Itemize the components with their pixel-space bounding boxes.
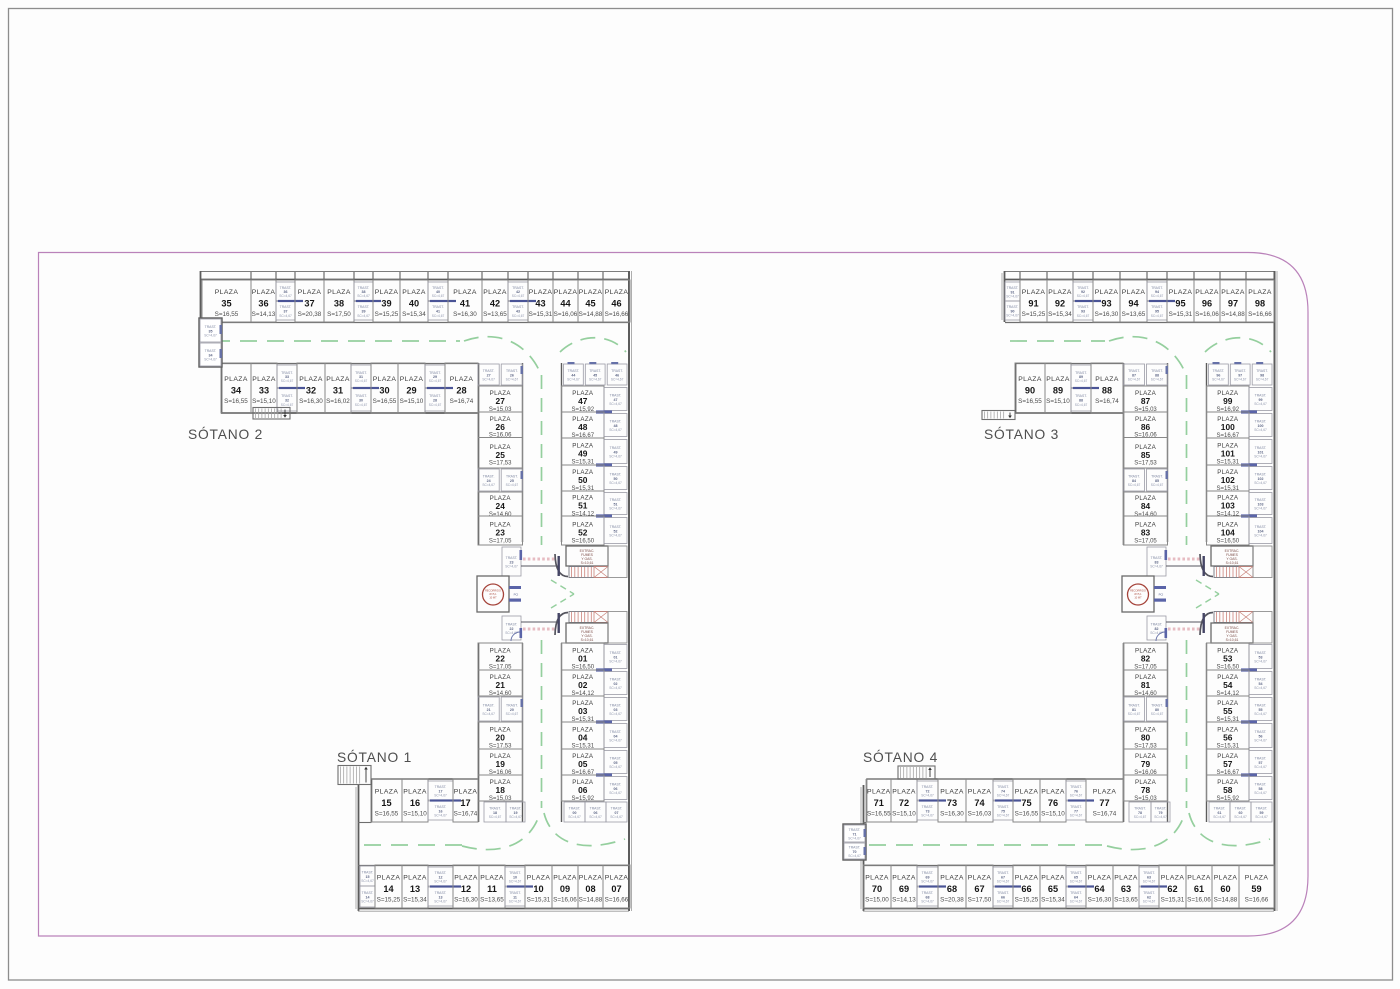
svg-text:SC=4,67: SC=4,67 [921, 900, 934, 904]
svg-text:S=15,31: S=15,31 [529, 311, 553, 318]
svg-text:10: 10 [533, 884, 543, 894]
svg-text:SC=4,67: SC=4,67 [434, 814, 447, 818]
svg-text:08: 08 [585, 884, 595, 894]
svg-text:S=15,25: S=15,25 [377, 897, 401, 904]
svg-text:95: 95 [1175, 299, 1185, 309]
svg-text:SC=4,67: SC=4,67 [921, 814, 934, 818]
svg-text:91: 91 [1028, 299, 1038, 309]
svg-text:S=17,05: S=17,05 [1134, 664, 1157, 670]
svg-text:PLAZA: PLAZA [1015, 789, 1039, 796]
svg-text:SC=4,67: SC=4,67 [1075, 403, 1088, 407]
svg-text:PLAZA: PLAZA [454, 875, 478, 882]
svg-text:100: 100 [1221, 422, 1235, 432]
svg-text:SC=4,67: SC=4,67 [1254, 739, 1267, 743]
svg-text:PCI: PCI [514, 593, 519, 597]
svg-text:S=10,61: S=10,61 [581, 638, 594, 642]
svg-text:S=13,65: S=13,65 [483, 311, 507, 318]
svg-text:PCI: PCI [1159, 593, 1164, 597]
svg-text:30: 30 [379, 386, 389, 396]
svg-text:09: 09 [560, 884, 570, 894]
svg-text:SC=4,67: SC=4,67 [609, 428, 622, 432]
svg-text:SC=4,67: SC=4,67 [509, 880, 522, 884]
svg-text:61: 61 [1194, 884, 1204, 894]
svg-text:S=16,55: S=16,55 [215, 311, 239, 318]
svg-text:SC=4,67: SC=4,67 [361, 900, 374, 904]
svg-text:S=16,74: S=16,74 [454, 811, 478, 818]
svg-text:S=14,13: S=14,13 [252, 311, 276, 318]
svg-text:21: 21 [496, 680, 506, 690]
svg-text:SC=4,67: SC=4,67 [1006, 314, 1019, 318]
svg-text:SC=4,67: SC=4,67 [1006, 295, 1019, 299]
svg-text:S=16,55: S=16,55 [1018, 398, 1042, 405]
svg-text:SC=4,67: SC=4,67 [848, 837, 861, 841]
svg-text:83: 83 [1141, 528, 1151, 538]
svg-text:SC=4,67: SC=4,67 [589, 815, 602, 819]
svg-text:S=15,10: S=15,10 [400, 398, 424, 405]
svg-text:SC=4,67: SC=4,67 [505, 565, 518, 569]
svg-text:58: 58 [1223, 785, 1233, 795]
svg-text:SC=4,67: SC=4,67 [1070, 880, 1083, 884]
svg-text:Ø=5,1: Ø=5,1 [1134, 592, 1142, 596]
svg-text:SÓTANO 2: SÓTANO 2 [188, 426, 263, 442]
svg-text:S=16,30: S=16,30 [1088, 897, 1112, 904]
svg-text:SC=4,67: SC=4,67 [1254, 402, 1267, 406]
svg-text:45: 45 [585, 299, 595, 309]
svg-text:S=16,66: S=16,66 [605, 311, 629, 318]
svg-text:PLAZA: PLAZA [299, 376, 323, 383]
svg-text:SC=4,67: SC=4,67 [1075, 379, 1088, 383]
svg-text:SC=4,67: SC=4,67 [1212, 378, 1225, 382]
svg-text:76: 76 [1048, 798, 1058, 808]
svg-text:90: 90 [1025, 386, 1035, 396]
svg-text:SC=4,67: SC=4,67 [997, 880, 1010, 884]
svg-text:104: 104 [1221, 528, 1235, 538]
svg-text:S=15,03: S=15,03 [1134, 796, 1157, 802]
svg-text:SC=4,67: SC=4,67 [1154, 815, 1167, 819]
svg-text:SC=4,67: SC=4,67 [434, 880, 447, 884]
svg-text:S=17,53: S=17,53 [489, 461, 512, 467]
svg-text:SC=4,67: SC=4,67 [1143, 900, 1156, 904]
svg-text:47: 47 [578, 396, 588, 406]
svg-text:06: 06 [578, 785, 588, 795]
svg-text:RECORRIDO: RECORRIDO [485, 589, 501, 593]
svg-text:24: 24 [496, 501, 506, 511]
svg-text:80: 80 [1141, 733, 1151, 743]
svg-text:SC=4,67: SC=4,67 [506, 483, 519, 487]
svg-text:PLAZA: PLAZA [1187, 875, 1211, 882]
svg-text:S=20,38: S=20,38 [298, 311, 322, 318]
svg-text:PLAZA: PLAZA [968, 875, 992, 882]
svg-text:S=15,25: S=15,25 [375, 311, 399, 318]
svg-text:SC=4,67: SC=4,67 [1254, 765, 1267, 769]
svg-text:S=14,60: S=14,60 [489, 512, 512, 518]
svg-text:74: 74 [974, 798, 985, 808]
svg-text:S=15,31: S=15,31 [1161, 897, 1185, 904]
svg-text:S=16,55: S=16,55 [867, 811, 891, 818]
svg-text:86: 86 [1141, 422, 1151, 432]
svg-text:SC=4,67: SC=4,67 [609, 712, 622, 716]
svg-text:S=16,50: S=16,50 [572, 538, 595, 544]
svg-text:S=14,60: S=14,60 [1134, 691, 1157, 697]
svg-text:SC=4,67: SC=4,67 [609, 402, 622, 406]
svg-text:11: 11 [487, 884, 497, 894]
svg-text:PLAZA: PLAZA [1195, 289, 1219, 296]
svg-text:18: 18 [496, 785, 506, 795]
svg-text:SC=4,67: SC=4,67 [281, 403, 294, 407]
svg-text:SC=4,67: SC=4,67 [357, 294, 370, 298]
svg-text:S=16,66: S=16,66 [1248, 311, 1272, 318]
svg-text:SC=4,67: SC=4,67 [1128, 712, 1141, 716]
svg-text:PLAZA: PLAZA [403, 789, 427, 796]
svg-text:60: 60 [1220, 884, 1230, 894]
svg-text:40: 40 [409, 299, 419, 309]
svg-text:SC=4,67: SC=4,67 [1151, 314, 1164, 318]
svg-text:PLAZA: PLAZA [1018, 376, 1042, 383]
svg-text:65: 65 [1048, 884, 1058, 894]
svg-text:S=16,30: S=16,30 [453, 311, 477, 318]
svg-text:PLAZA: PLAZA [215, 289, 239, 296]
svg-text:54: 54 [1223, 680, 1233, 690]
svg-text:SC=4,67: SC=4,67 [1254, 712, 1267, 716]
svg-text:SC=4,67: SC=4,67 [997, 794, 1010, 798]
svg-text:02: 02 [578, 680, 588, 690]
svg-text:SC=4,67: SC=4,67 [1151, 483, 1164, 487]
svg-text:PLAZA: PLAZA [483, 289, 507, 296]
svg-text:TRAST.: TRAST. [280, 305, 292, 309]
svg-text:SÓTANO 4: SÓTANO 4 [863, 749, 938, 765]
svg-text:PLAZA: PLAZA [1161, 875, 1185, 882]
svg-text:PLAZA: PLAZA [377, 875, 401, 882]
svg-text:SC=4,67: SC=4,67 [204, 358, 217, 362]
svg-text:71: 71 [874, 798, 884, 808]
svg-text:SC=4,67: SC=4,67 [921, 794, 934, 798]
svg-text:25: 25 [496, 450, 506, 460]
svg-text:66: 66 [1021, 884, 1031, 894]
svg-text:S=13,65: S=13,65 [1114, 897, 1138, 904]
svg-text:SC=4,67: SC=4,67 [609, 739, 622, 743]
svg-text:S=16,55: S=16,55 [373, 398, 397, 405]
svg-text:PLAZA: PLAZA [605, 875, 629, 882]
svg-text:S=16,06: S=16,06 [1187, 897, 1211, 904]
svg-text:S=13,65: S=13,65 [480, 897, 504, 904]
svg-text:05: 05 [578, 759, 588, 769]
svg-text:PLAZA: PLAZA [554, 289, 578, 296]
svg-text:S=15,10: S=15,10 [892, 811, 916, 818]
svg-text:Ø=5,1: Ø=5,1 [489, 592, 497, 596]
svg-text:TRAST.: TRAST. [1075, 394, 1087, 398]
svg-text:PLAZA: PLAZA [373, 376, 397, 383]
svg-text:SC=4,67: SC=4,67 [432, 314, 445, 318]
svg-text:S=17,05: S=17,05 [1134, 538, 1157, 544]
svg-text:94: 94 [1128, 299, 1139, 309]
svg-text:SC=4,67: SC=4,67 [429, 379, 442, 383]
svg-text:SC=4,67: SC=4,67 [1256, 378, 1269, 382]
svg-text:PLAZA: PLAZA [453, 289, 477, 296]
svg-text:S=14,88: S=14,88 [1214, 897, 1238, 904]
svg-text:SC=4,67: SC=4,67 [609, 686, 622, 690]
svg-text:SC=4,67: SC=4,67 [609, 481, 622, 485]
svg-text:55: 55 [1223, 706, 1233, 716]
svg-text:TRAST.: TRAST. [281, 394, 293, 398]
svg-text:57: 57 [1223, 759, 1233, 769]
svg-text:PLAZA: PLAZA [1095, 289, 1119, 296]
svg-text:TRAST.: TRAST. [1151, 305, 1163, 309]
svg-text:S=15,31: S=15,31 [527, 897, 551, 904]
svg-text:77: 77 [1099, 798, 1109, 808]
svg-text:S=16,74: S=16,74 [1095, 398, 1119, 405]
svg-text:SC=4,67: SC=4,67 [1254, 791, 1267, 795]
svg-text:SC=4,67: SC=4,67 [434, 794, 447, 798]
svg-text:67: 67 [974, 884, 984, 894]
svg-text:TRAST.: TRAST. [432, 305, 444, 309]
svg-text:48: 48 [578, 422, 588, 432]
svg-text:S=16,55: S=16,55 [224, 398, 248, 405]
svg-text:SC=4,67: SC=4,67 [1077, 314, 1090, 318]
svg-text:S=16,30: S=16,30 [454, 897, 478, 904]
svg-text:12: 12 [461, 884, 471, 894]
svg-text:SC=4,67: SC=4,67 [1128, 378, 1141, 382]
svg-text:SC=4,67: SC=4,67 [482, 378, 495, 382]
svg-text:15: 15 [381, 798, 391, 808]
svg-text:S=15,34: S=15,34 [1048, 311, 1072, 318]
svg-text:PLAZA: PLAZA [529, 289, 553, 296]
svg-text:19: 19 [496, 759, 506, 769]
svg-text:43: 43 [535, 299, 545, 309]
svg-text:56: 56 [1223, 733, 1233, 743]
svg-text:99: 99 [1223, 396, 1233, 406]
svg-text:68: 68 [947, 884, 957, 894]
svg-text:S=15,31: S=15,31 [572, 743, 595, 749]
svg-text:S=17,50: S=17,50 [327, 311, 351, 318]
svg-text:97: 97 [1228, 299, 1238, 309]
svg-text:07: 07 [611, 884, 621, 894]
svg-text:S=14,60: S=14,60 [1134, 512, 1157, 518]
svg-text:S=16,02: S=16,02 [326, 398, 350, 405]
svg-text:75: 75 [1021, 798, 1031, 808]
svg-text:SC=4,67: SC=4,67 [848, 854, 861, 858]
svg-text:17: 17 [460, 798, 470, 808]
svg-text:42: 42 [490, 299, 500, 309]
svg-text:88: 88 [1102, 386, 1112, 396]
svg-text:SC=4,67: SC=4,67 [1254, 534, 1267, 538]
svg-text:PLAZA: PLAZA [865, 875, 889, 882]
svg-text:S=10,61: S=10,61 [1226, 561, 1239, 565]
svg-text:PLAZA: PLAZA [867, 789, 891, 796]
svg-text:SC=4,67: SC=4,67 [567, 378, 580, 382]
svg-text:SC=4,67: SC=4,67 [1134, 815, 1147, 819]
svg-text:SC=4,67: SC=4,67 [482, 483, 495, 487]
svg-text:S=16,66: S=16,66 [605, 897, 629, 904]
svg-text:S=16,06: S=16,06 [553, 897, 577, 904]
svg-text:PLAZA: PLAZA [252, 289, 276, 296]
svg-text:PLAZA: PLAZA [605, 289, 629, 296]
svg-text:53: 53 [1223, 654, 1233, 664]
svg-text:13: 13 [410, 884, 420, 894]
svg-text:PLAZA: PLAZA [1095, 376, 1119, 383]
svg-text:S=16,06: S=16,06 [554, 311, 578, 318]
svg-text:PLAZA: PLAZA [968, 789, 992, 796]
svg-text:22: 22 [496, 654, 506, 664]
svg-text:SÓTANO 1: SÓTANO 1 [337, 749, 412, 765]
svg-text:PLAZA: PLAZA [454, 789, 478, 796]
svg-text:PLAZA: PLAZA [375, 289, 399, 296]
svg-text:73: 73 [947, 798, 957, 808]
svg-text:S=15,92: S=15,92 [1217, 796, 1240, 802]
svg-text:S=16,30: S=16,30 [940, 811, 964, 818]
svg-text:37: 37 [304, 299, 314, 309]
svg-text:S=14,13: S=14,13 [892, 897, 916, 904]
svg-text:98: 98 [1255, 299, 1265, 309]
svg-text:S=17,53: S=17,53 [1134, 743, 1157, 749]
svg-text:44: 44 [560, 299, 571, 309]
svg-text:PLAZA: PLAZA [1048, 289, 1072, 296]
svg-text:S=16,74: S=16,74 [450, 398, 474, 405]
svg-text:SC=4,67: SC=4,67 [1151, 712, 1164, 716]
svg-text:PLAZA: PLAZA [579, 875, 603, 882]
svg-text:92: 92 [1055, 299, 1065, 309]
svg-text:PLAZA: PLAZA [527, 875, 551, 882]
svg-text:PLAZA: PLAZA [327, 289, 351, 296]
svg-text:TRAST.: TRAST. [512, 305, 524, 309]
svg-text:S=14,88: S=14,88 [579, 897, 603, 904]
svg-text:S=14,60: S=14,60 [489, 691, 512, 697]
svg-text:SC=4,67: SC=4,67 [361, 879, 374, 883]
svg-text:S=15,10: S=15,10 [1046, 398, 1070, 405]
svg-text:29: 29 [406, 386, 416, 396]
svg-text:63: 63 [1121, 884, 1131, 894]
svg-text:SC=4,67: SC=4,67 [609, 534, 622, 538]
svg-text:SC=4,67: SC=4,67 [279, 314, 292, 318]
svg-text:01: 01 [578, 654, 588, 664]
svg-text:S=15,34: S=15,34 [1041, 897, 1065, 904]
svg-text:03: 03 [578, 706, 588, 716]
svg-text:04: 04 [578, 733, 588, 743]
svg-text:S=14,88: S=14,88 [1221, 311, 1245, 318]
svg-text:S=16,74: S=16,74 [1093, 811, 1117, 818]
svg-text:SC=4,67: SC=4,67 [512, 314, 525, 318]
svg-text:S=15,31: S=15,31 [1217, 743, 1240, 749]
svg-text:SC=4,67: SC=4,67 [1234, 815, 1247, 819]
svg-text:49: 49 [578, 449, 588, 459]
svg-text:S=15,25: S=15,25 [1015, 897, 1039, 904]
svg-text:27: 27 [496, 396, 506, 406]
svg-text:SC=4,67: SC=4,67 [1254, 507, 1267, 511]
svg-text:SC=4,67: SC=4,67 [1255, 815, 1268, 819]
svg-text:PLAZA: PLAZA [1169, 289, 1193, 296]
svg-text:PLAZA: PLAZA [326, 376, 350, 383]
svg-text:S=16,50: S=16,50 [1217, 538, 1240, 544]
svg-text:SC=4,67: SC=4,67 [1254, 428, 1267, 432]
svg-text:TRAST.: TRAST. [358, 305, 370, 309]
svg-text:PLAZA: PLAZA [940, 789, 964, 796]
svg-text:SC=4,67: SC=4,67 [1151, 294, 1164, 298]
svg-text:S=17,53: S=17,53 [1134, 461, 1157, 467]
svg-text:SÓTANO 3: SÓTANO 3 [984, 426, 1059, 442]
svg-text:PLAZA: PLAZA [402, 289, 426, 296]
svg-text:S=15,31: S=15,31 [1217, 459, 1240, 465]
svg-text:SC=4,67: SC=4,67 [1234, 378, 1247, 382]
svg-text:SC=4,67: SC=4,67 [279, 294, 292, 298]
svg-text:SC=4,67: SC=4,67 [1143, 880, 1156, 884]
svg-text:64: 64 [1094, 884, 1105, 894]
svg-text:SC=4,67: SC=4,67 [1070, 900, 1083, 904]
svg-text:SC=4,67: SC=4,67 [509, 815, 522, 819]
svg-text:69: 69 [899, 884, 909, 894]
svg-text:SC=4,67: SC=4,67 [1213, 815, 1226, 819]
svg-text:SC=4,67: SC=4,67 [1254, 455, 1267, 459]
svg-text:20: 20 [496, 733, 506, 743]
svg-text:PLAZA: PLAZA [1088, 875, 1112, 882]
svg-text:PLAZA: PLAZA [480, 875, 504, 882]
svg-text:SC=4,67: SC=4,67 [512, 294, 525, 298]
svg-text:34: 34 [231, 386, 242, 396]
svg-text:SC=4,67: SC=4,67 [489, 815, 502, 819]
svg-text:81: 81 [1141, 680, 1151, 690]
svg-text:SC=4,67: SC=4,67 [609, 660, 622, 664]
svg-text:79: 79 [1141, 759, 1151, 769]
svg-text:PLAZA: PLAZA [224, 376, 248, 383]
svg-text:S=16,50: S=16,50 [1217, 664, 1240, 670]
svg-text:33: 33 [259, 386, 269, 396]
svg-text:103: 103 [1221, 501, 1235, 511]
svg-text:SC=4,67: SC=4,67 [997, 814, 1010, 818]
svg-text:SC=4,67: SC=4,67 [355, 379, 368, 383]
svg-text:PLAZA: PLAZA [892, 789, 916, 796]
svg-text:S=17,53: S=17,53 [489, 743, 512, 749]
svg-text:SC=4,67: SC=4,67 [204, 334, 217, 338]
svg-text:S=15,00: S=15,00 [865, 897, 889, 904]
svg-text:SC=4,67: SC=4,67 [609, 455, 622, 459]
svg-text:TRAST.: TRAST. [355, 394, 367, 398]
svg-text:SC=4,67: SC=4,67 [1070, 794, 1083, 798]
svg-text:PLAZA: PLAZA [1122, 289, 1146, 296]
svg-text:S=16,30: S=16,30 [1095, 311, 1119, 318]
svg-text:96: 96 [1202, 299, 1212, 309]
svg-text:101: 101 [1221, 449, 1235, 459]
svg-text:72: 72 [899, 798, 909, 808]
svg-text:S=15,10: S=15,10 [403, 811, 427, 818]
svg-text:PLAZA: PLAZA [940, 875, 964, 882]
svg-text:SC=4,67: SC=4,67 [482, 712, 495, 716]
svg-text:S=15,10: S=15,10 [1041, 811, 1065, 818]
svg-text:52: 52 [578, 528, 588, 538]
svg-text:PLAZA: PLAZA [1015, 875, 1039, 882]
svg-text:SC=4,67: SC=4,67 [429, 403, 442, 407]
svg-text:SC=4,67: SC=4,67 [506, 378, 519, 382]
svg-text:SC=4,67: SC=4,67 [921, 880, 934, 884]
svg-text:SC=4,67: SC=4,67 [589, 378, 602, 382]
svg-text:SC=4,67: SC=4,67 [1070, 814, 1083, 818]
svg-text:16: 16 [410, 798, 420, 808]
svg-text:TRAST.: TRAST. [429, 394, 441, 398]
svg-text:SC=4,67: SC=4,67 [609, 507, 622, 511]
svg-text:S=15,34: S=15,34 [403, 897, 427, 904]
svg-text:PLAZA: PLAZA [553, 875, 577, 882]
svg-text:PLAZA: PLAZA [298, 289, 322, 296]
svg-text:SC=4,67: SC=4,67 [281, 379, 294, 383]
svg-text:SC=4,67: SC=4,67 [609, 791, 622, 795]
svg-text:S=17,50: S=17,50 [968, 897, 992, 904]
svg-text:PLAZA: PLAZA [375, 789, 399, 796]
svg-text:SC=4,67: SC=4,67 [434, 900, 447, 904]
svg-text:31: 31 [333, 386, 343, 396]
svg-text:S=13,65: S=13,65 [1122, 311, 1146, 318]
svg-text:84: 84 [1141, 501, 1151, 511]
svg-text:S=15,31: S=15,31 [1169, 311, 1193, 318]
svg-text:PLAZA: PLAZA [1221, 289, 1245, 296]
svg-text:PLAZA: PLAZA [1041, 789, 1065, 796]
svg-text:SC=4,67: SC=4,67 [506, 712, 519, 716]
